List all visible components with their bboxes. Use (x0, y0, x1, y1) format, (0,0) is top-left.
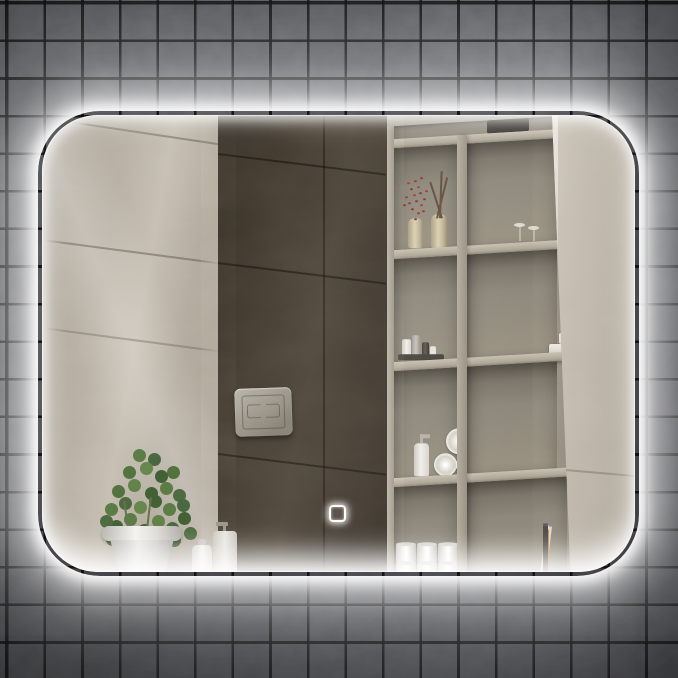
vase (431, 214, 447, 248)
shelf-cell-toilet-paper (394, 483, 457, 572)
book (543, 526, 548, 572)
toilet-paper-roll (396, 563, 416, 572)
stand-cap (514, 223, 525, 227)
toilet-paper-stack (396, 525, 458, 572)
flush-button-right (266, 403, 280, 417)
cell-items (467, 252, 557, 355)
toilet-paper-roll (438, 563, 458, 572)
cell-items (467, 141, 557, 243)
mirror-glass (42, 115, 635, 572)
shelf-left-face (387, 126, 394, 572)
shelf-cell-sphere (467, 361, 557, 474)
shelf-cell-vases (394, 144, 457, 250)
flush-button-left (247, 404, 261, 418)
rolled-towel (434, 453, 457, 476)
reflection-dark-marble-column (218, 115, 387, 572)
decor-stand (533, 229, 535, 241)
dark-marble-seam (218, 153, 386, 175)
twig (436, 177, 448, 218)
cell-items (394, 146, 457, 248)
cell-items (394, 257, 457, 360)
red-berry-branch (414, 218, 417, 221)
reflection-shelf-unit (387, 115, 577, 572)
vase (408, 218, 423, 248)
led-mirror-product-photo (0, 0, 678, 678)
cell-items (394, 369, 457, 476)
toilet-paper-roll (417, 563, 437, 572)
flower-pot-rim (102, 526, 182, 541)
potted-plant-foliage (90, 449, 200, 537)
shelf-cell-clock (467, 249, 557, 358)
toilet-paper-roll (417, 544, 437, 562)
cell-items (394, 485, 457, 572)
toilet-paper-roll (438, 544, 458, 562)
dark-marble-seam (218, 262, 386, 284)
shelf-cell-grid (387, 115, 577, 572)
stand-cap (528, 226, 539, 230)
cell-items (467, 480, 567, 572)
decor-stand (519, 226, 521, 241)
toilet-paper-roll (396, 544, 416, 562)
pump-bottle (414, 443, 429, 476)
dark-marble-vertical-seam (323, 115, 325, 572)
shelf-cell-bottles (394, 255, 457, 362)
shelf-cell-towels (394, 367, 457, 478)
lotion-bottle (192, 545, 212, 572)
toiletry-bottle (412, 335, 420, 356)
toilet-flush-plate (234, 387, 293, 437)
shelf-cell-birds (467, 138, 557, 246)
dark-marble-seam (218, 453, 386, 475)
soap-dispenser (213, 531, 237, 572)
touch-sensor-button[interactable] (329, 505, 346, 522)
cell-items (467, 364, 557, 471)
shelf-cell-books (467, 477, 567, 572)
shelf-vertical-divider (457, 135, 467, 572)
